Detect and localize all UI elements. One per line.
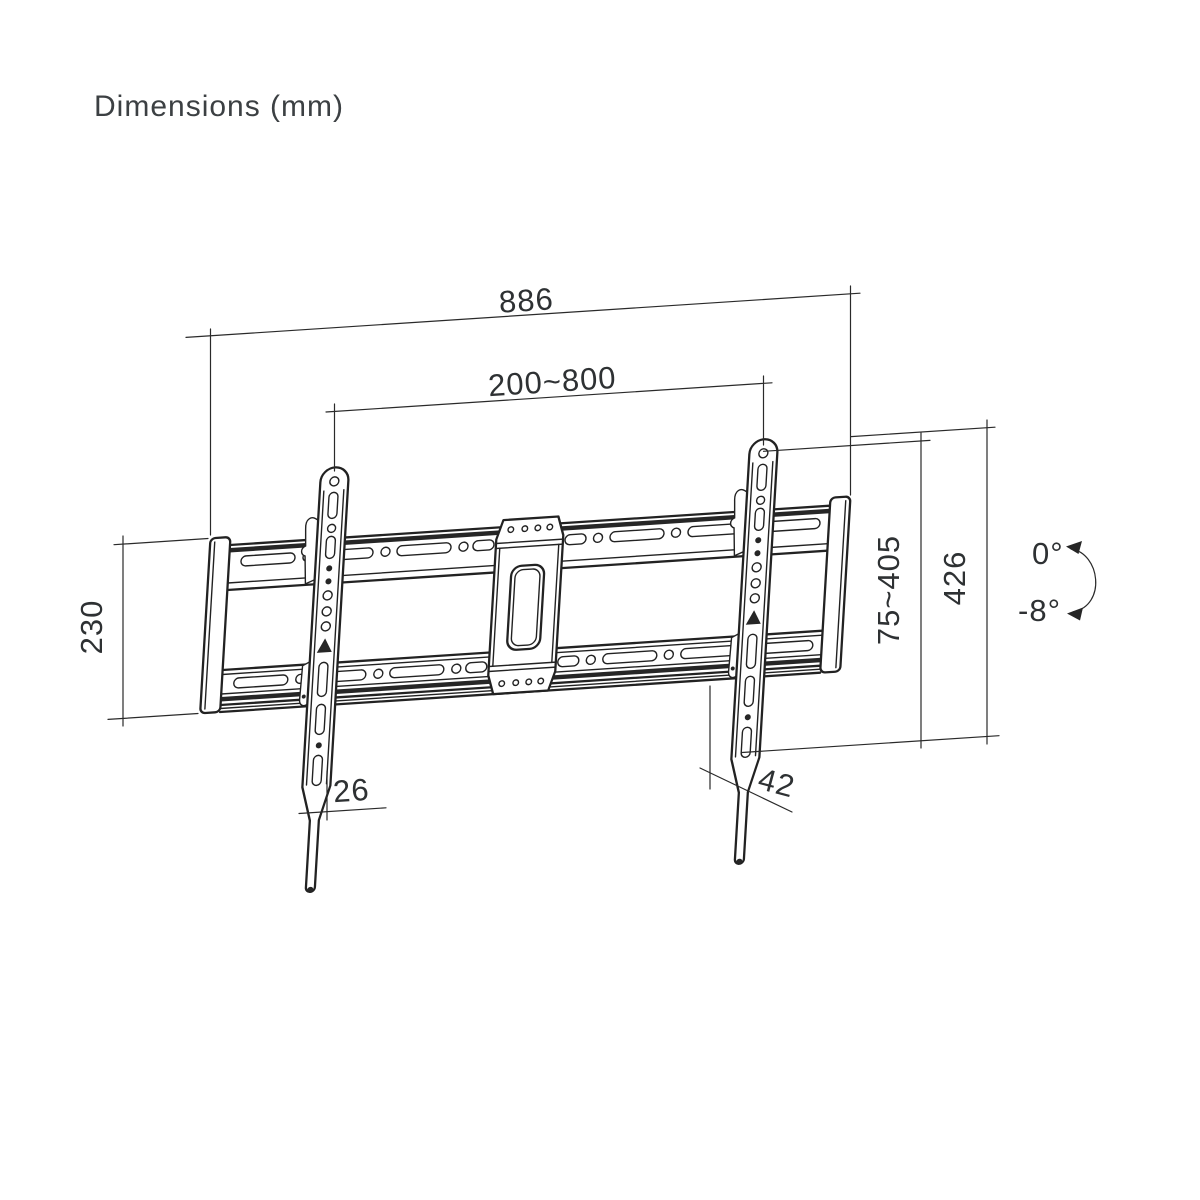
tilt-range-indicator: 0° -8° (1018, 536, 1096, 628)
tilt-max-label: 0° (1032, 536, 1064, 571)
dim-depth-offset-label: 42 (755, 761, 799, 804)
center-plate (487, 516, 564, 694)
tv-mount-dimension-drawing: Dimensions (mm) (0, 0, 1200, 1200)
dim-overall-width-label: 886 (498, 281, 555, 320)
dim-bracket-height-range-label: 75~405 (871, 535, 906, 645)
tilt-min-label: -8° (1018, 593, 1061, 628)
dim-mounting-width-range-label: 200~800 (487, 360, 618, 403)
dim-strap-width-label: 26 (332, 772, 371, 809)
tilt-arc-arrowhead-bottom-icon (1067, 608, 1083, 621)
tv-mount-body (189, 433, 854, 899)
dim-wall-plate-height-label: 230 (74, 600, 109, 655)
dim-overall-height-label: 426 (937, 551, 972, 606)
page-title: Dimensions (mm) (94, 90, 344, 123)
dimensions-diagram-page: Dimensions (mm) (0, 0, 1200, 1200)
dim-wall-plate-height (108, 536, 208, 726)
tilt-arc-icon (1071, 549, 1096, 612)
